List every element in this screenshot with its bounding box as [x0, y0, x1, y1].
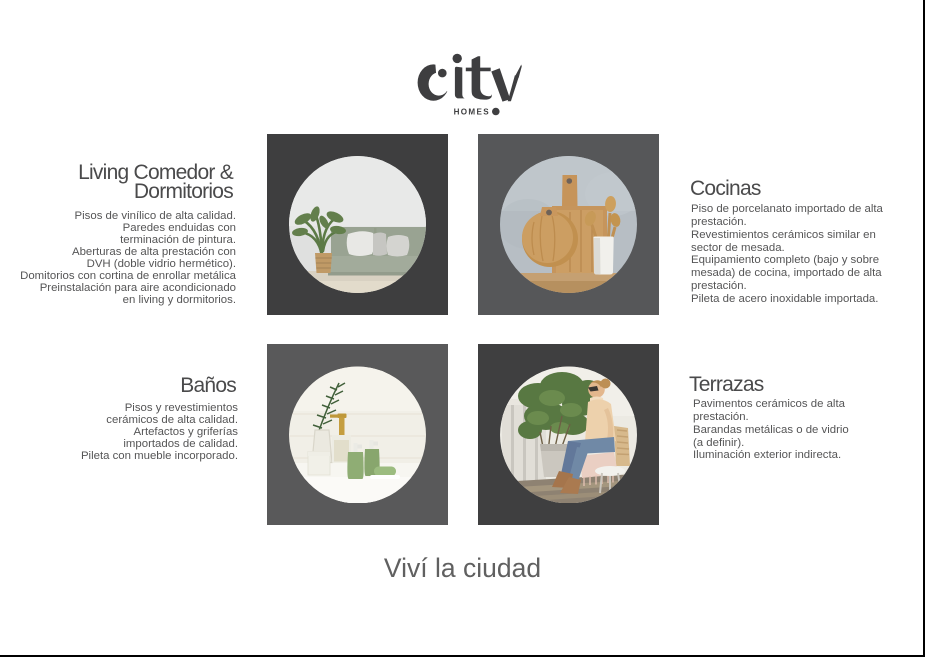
- svg-text:HOMES: HOMES: [454, 107, 490, 116]
